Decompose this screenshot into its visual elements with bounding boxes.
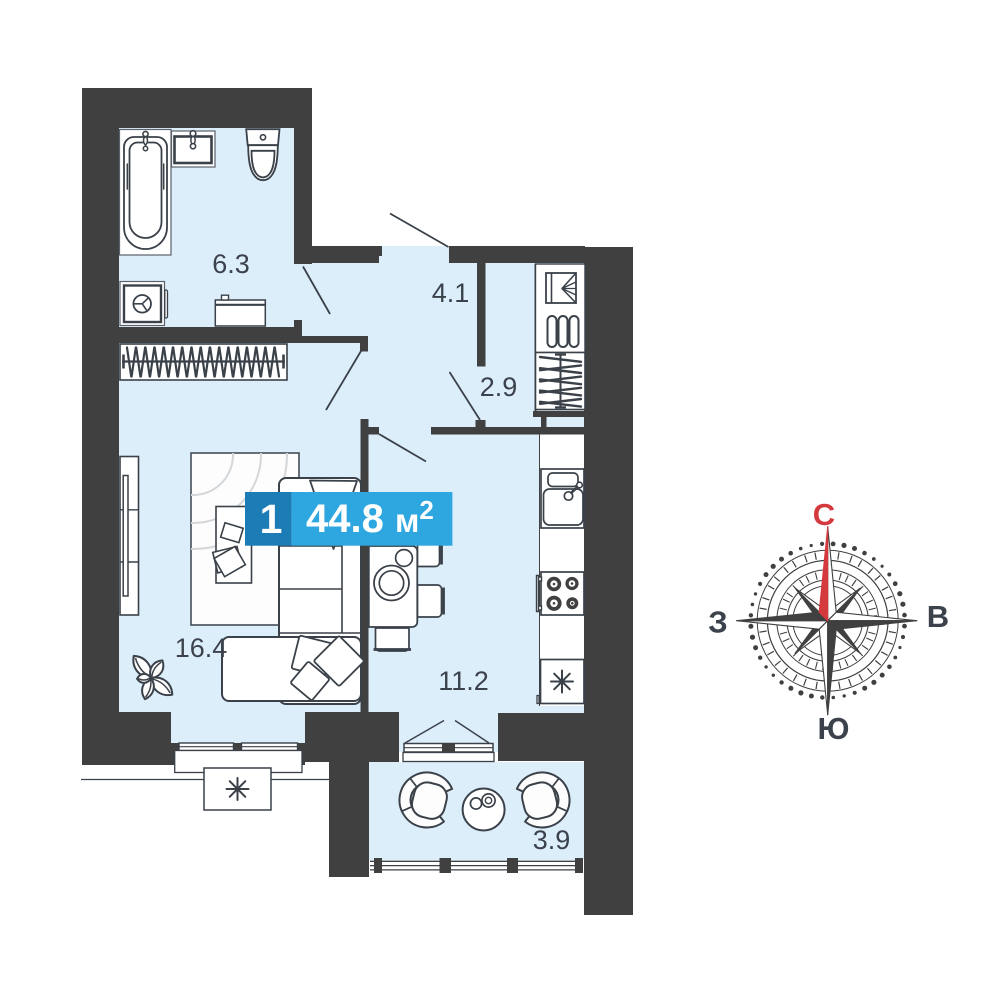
svg-text:16.4: 16.4 [175, 633, 228, 663]
svg-text:2.9: 2.9 [480, 372, 518, 402]
svg-text:11.2: 11.2 [438, 666, 489, 696]
svg-text:В: В [927, 599, 949, 634]
svg-text:З: З [708, 605, 727, 640]
svg-text:1: 1 [260, 496, 283, 542]
svg-text:6.3: 6.3 [212, 249, 250, 279]
svg-text:4.1: 4.1 [432, 278, 470, 308]
svg-text:44.8 м2: 44.8 м2 [306, 495, 434, 541]
svg-text:Ю: Ю [818, 711, 850, 746]
svg-text:3.9: 3.9 [533, 825, 571, 855]
svg-text:С: С [813, 497, 835, 532]
